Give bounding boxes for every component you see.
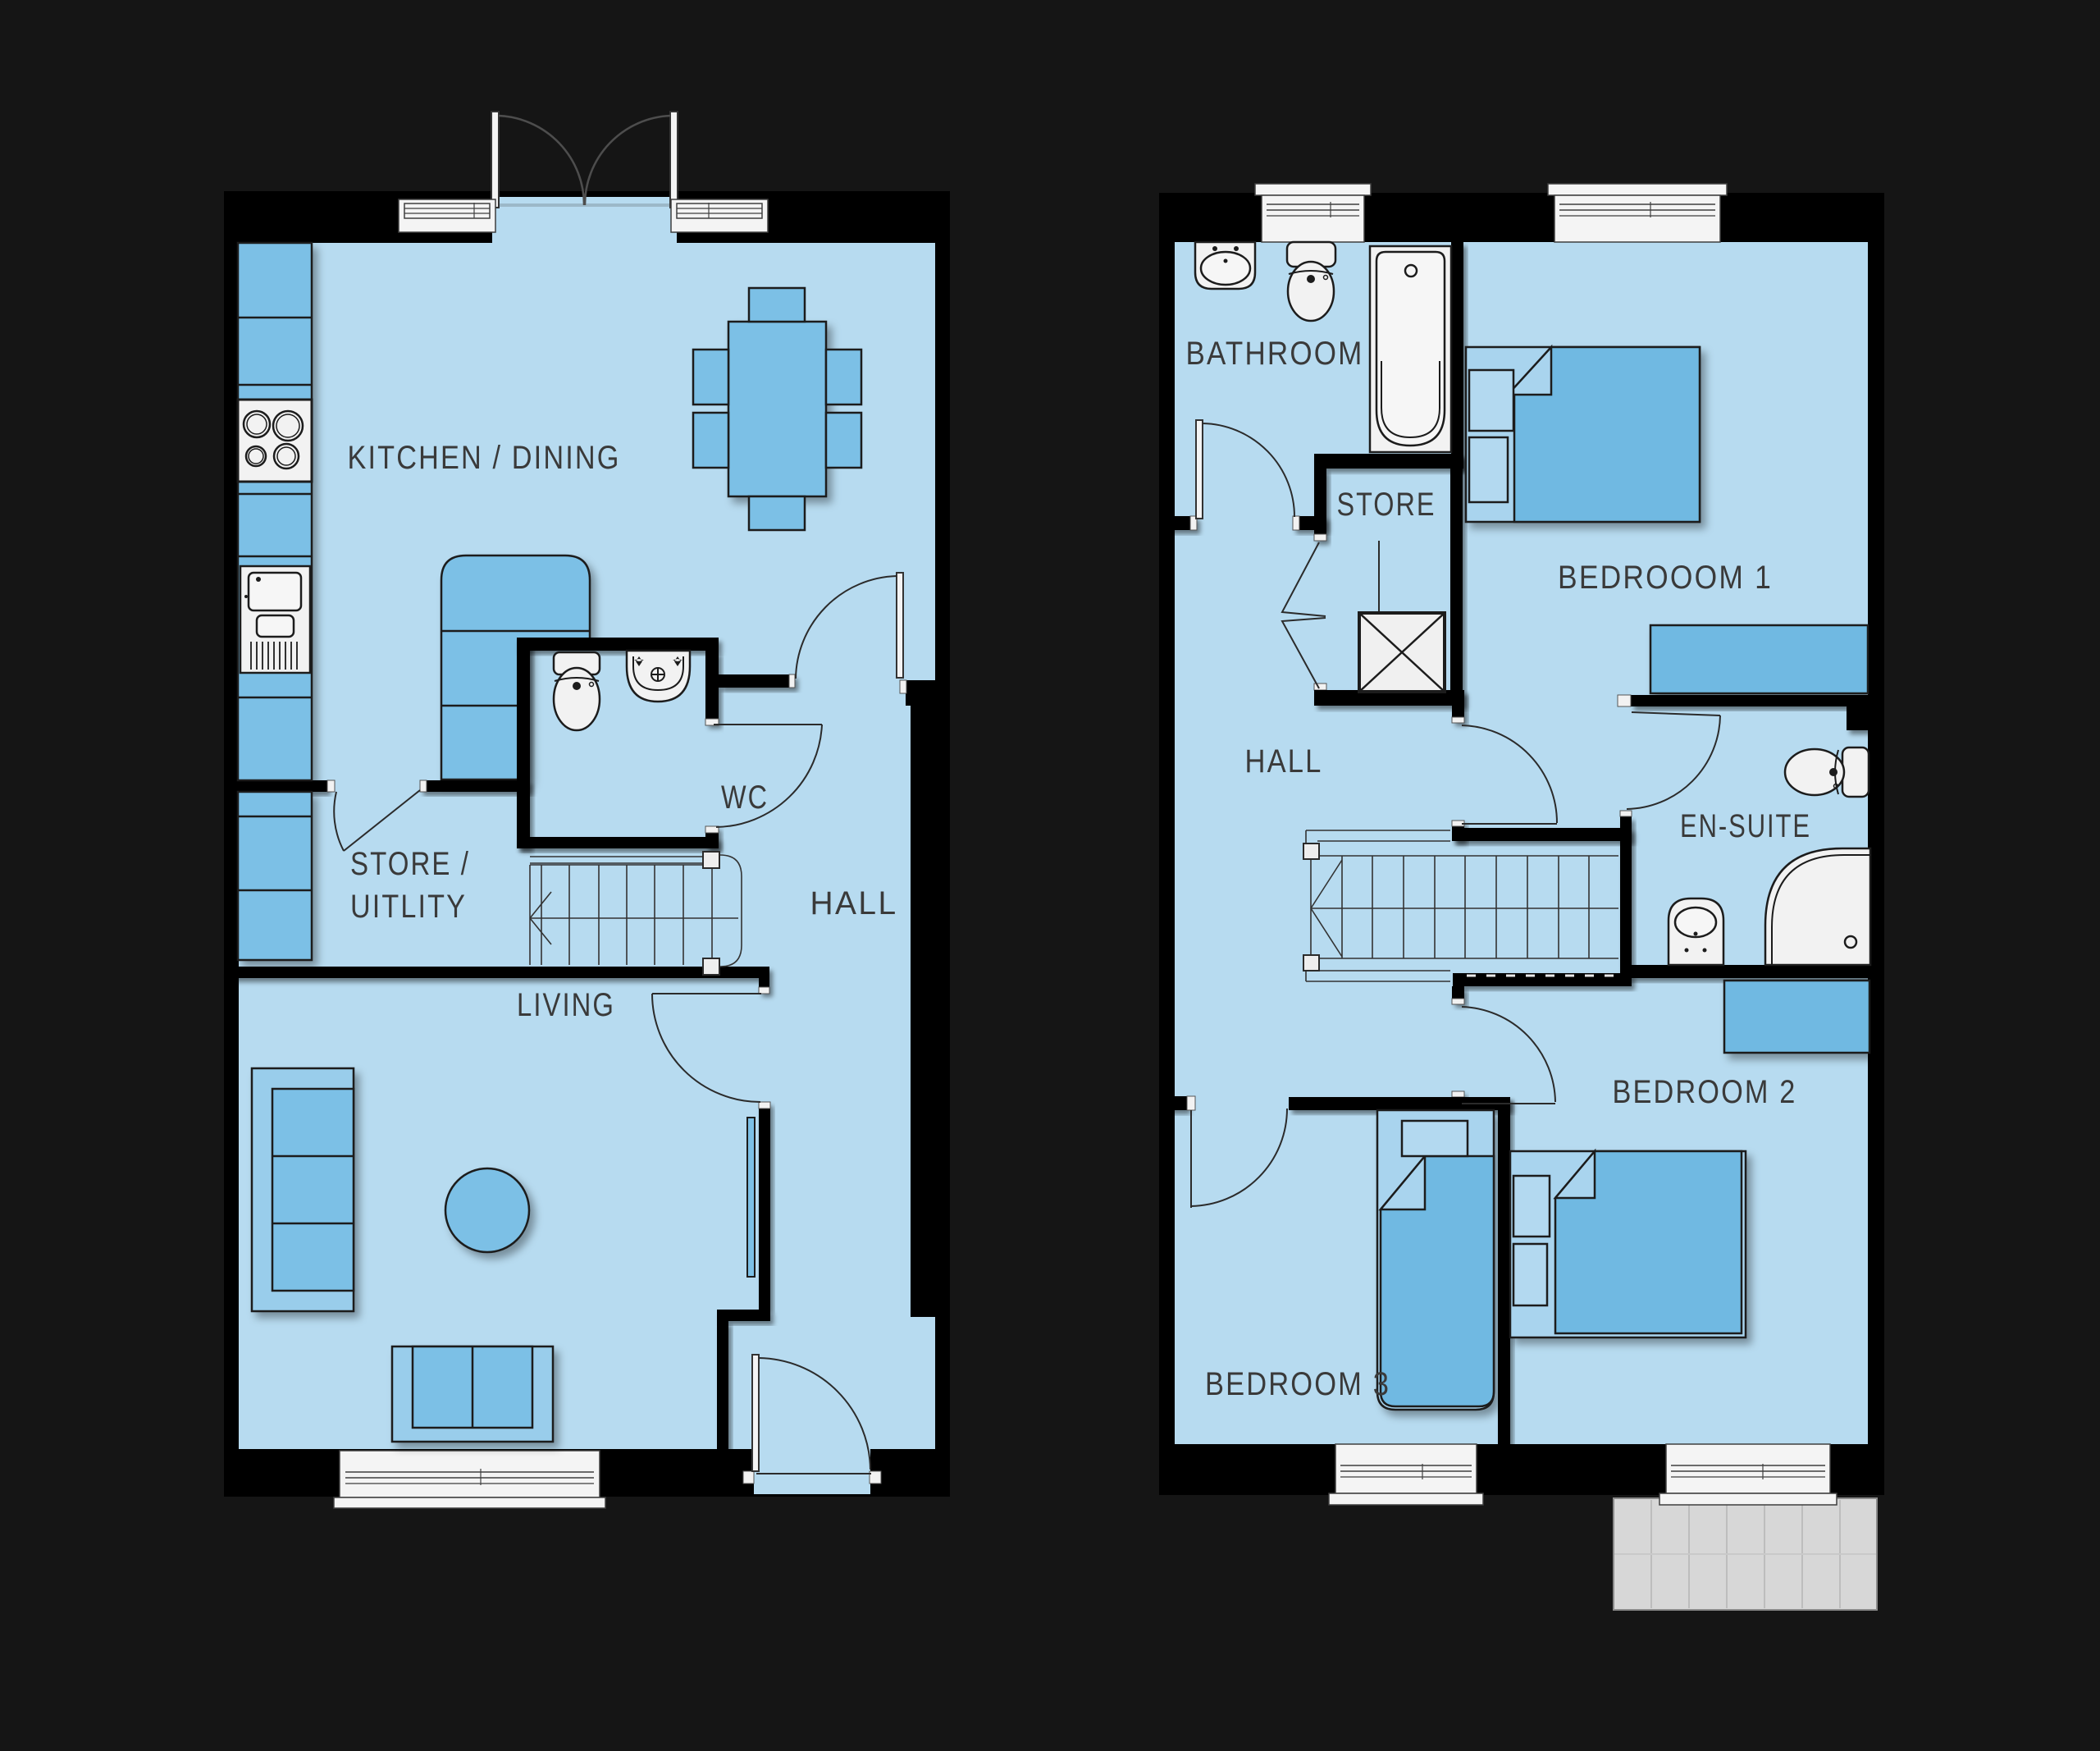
svg-text:BEDROOM 2: BEDROOM 2 <box>1613 1074 1797 1110</box>
svg-text:HALL: HALL <box>810 885 898 921</box>
svg-text:KITCHEN / DINING: KITCHEN / DINING <box>348 440 621 476</box>
svg-text:UITLITY: UITLITY <box>350 889 467 925</box>
svg-text:STORE /: STORE / <box>350 846 470 882</box>
svg-text:WC: WC <box>721 779 769 816</box>
svg-text:BEDROOOM 1: BEDROOOM 1 <box>1558 560 1773 596</box>
svg-text:BATHROOM: BATHROOM <box>1186 336 1364 372</box>
svg-text:STORE: STORE <box>1337 487 1436 523</box>
svg-text:LIVING: LIVING <box>517 987 615 1023</box>
svg-text:BEDROOM 3: BEDROOM 3 <box>1205 1366 1390 1402</box>
svg-text:HALL: HALL <box>1245 743 1323 779</box>
svg-text:EN-SUITE: EN-SUITE <box>1680 808 1811 844</box>
